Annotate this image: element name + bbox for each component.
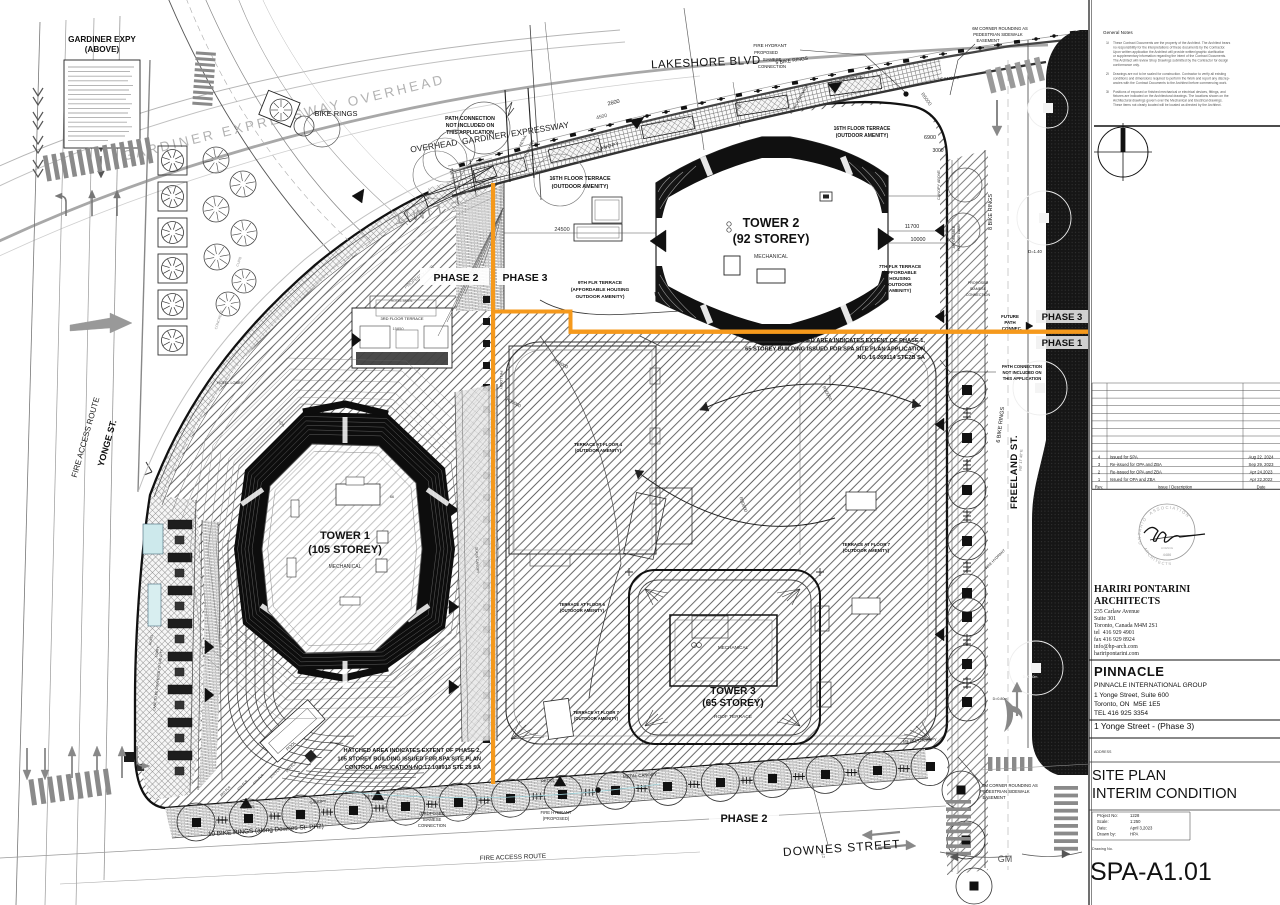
svg-text:HARIRI PONTARINI: HARIRI PONTARINI	[1094, 584, 1190, 595]
svg-text:Drawings are not to be scaled: Drawings are not to be scaled for constr…	[1113, 72, 1226, 76]
svg-text:Rev.: Rev.	[1095, 485, 1103, 490]
svg-text:FIRE HYDRANT: FIRE HYDRANT	[753, 43, 787, 48]
svg-text:no responsibility for the inte: no responsibility for the interpretation…	[1113, 45, 1226, 49]
svg-text:Issued for SPA: Issued for SPA	[1110, 454, 1138, 459]
svg-text:(AFFORDABLE: (AFFORDABLE	[883, 270, 916, 275]
svg-text:Project No:: Project No:	[1097, 813, 1118, 818]
svg-text:66: 66	[390, 495, 394, 499]
svg-text:TERRACE AT FLOOR 7: TERRACE AT FLOOR 7	[573, 710, 620, 715]
svg-text:TOWER 3: TOWER 3	[710, 686, 756, 697]
svg-text:PINNACLE INTERNATIONAL GROUP: PINNACLE INTERNATIONAL GROUP	[1094, 682, 1207, 689]
svg-text:D=0.80m: D=0.80m	[1023, 675, 1038, 679]
svg-text:PEDESTRIAN SIDEWALK: PEDESTRIAN SIDEWALK	[980, 789, 1030, 794]
svg-text:AMENITY): AMENITY)	[889, 288, 912, 293]
svg-text:PHASE 2: PHASE 2	[434, 272, 479, 284]
svg-text:PEDESTRIAN SIDEWALK: PEDESTRIAN SIDEWALK	[973, 32, 1023, 37]
svg-text:OUTDOOR: OUTDOOR	[888, 282, 912, 287]
svg-text:or supplementary information r: or supplementary information regarding t…	[1113, 54, 1226, 58]
svg-text:info@hp-arch.com: info@hp-arch.com	[1094, 643, 1138, 650]
svg-text:PHASE 3: PHASE 3	[1042, 312, 1083, 323]
svg-text:RETAIL: RETAIL	[241, 803, 256, 809]
svg-text:THIS APPLICATION: THIS APPLICATION	[446, 130, 494, 136]
svg-text:TERRACE AT FLOOR 4: TERRACE AT FLOOR 4	[574, 442, 623, 447]
svg-text:TOWER 2: TOWER 2	[743, 216, 800, 230]
svg-text:FUTURE: FUTURE	[1001, 314, 1019, 319]
svg-text:D=1.40: D=1.40	[1028, 249, 1042, 254]
svg-text:AFFORDABLE: AFFORDABLE	[952, 225, 956, 248]
svg-text:NO. 16 269114 STE2B SA: NO. 16 269114 STE2B SA	[857, 355, 925, 361]
svg-text:PROPOSED: PROPOSED	[754, 50, 778, 55]
svg-text:MECHANICAL: MECHANICAL	[718, 645, 749, 650]
svg-text:NOT INCLUDED ON: NOT INCLUDED ON	[1002, 370, 1041, 375]
svg-text:GARDINER EXPY: GARDINER EXPY	[68, 35, 136, 44]
svg-text:235 Carlaw Avenue: 235 Carlaw Avenue	[1094, 609, 1140, 615]
svg-text:Drawing No.: Drawing No.	[1092, 847, 1113, 851]
svg-text:11700: 11700	[905, 224, 920, 230]
svg-text:15850: 15850	[392, 326, 404, 331]
svg-text:Date: Date	[1257, 485, 1267, 490]
svg-text:Issue / Description: Issue / Description	[1158, 485, 1193, 490]
svg-text:FREELAND ST.: FREELAND ST.	[1009, 435, 1020, 509]
svg-text:4486: 4486	[1163, 553, 1171, 557]
svg-text:Sep 29, 2023: Sep 29, 2023	[1249, 462, 1275, 467]
svg-text:1228: 1228	[1130, 813, 1140, 818]
svg-text:HATCHED AREA INDICATES EXTENT: HATCHED AREA INDICATES EXTENT OF PHASE 2…	[344, 748, 482, 754]
svg-text:CANOPY ABOVE: CANOPY ABOVE	[937, 170, 941, 200]
svg-text:HOTEL LOBBY: HOTEL LOBBY	[217, 381, 244, 385]
svg-text:Suite 301: Suite 301	[1094, 616, 1116, 622]
svg-text:SIAMESE: SIAMESE	[763, 57, 782, 62]
svg-text:TERRACE AT FLOOR 7: TERRACE AT FLOOR 7	[842, 542, 891, 547]
svg-text:1 Yonge Street - (Phase 3): 1 Yonge Street - (Phase 3)	[1094, 721, 1194, 731]
svg-text:3RD FLOOR TERRACE: 3RD FLOOR TERRACE	[380, 316, 423, 321]
svg-text:BIKE RINGS: BIKE RINGS	[315, 109, 358, 118]
svg-text:1:250: 1:250	[1130, 819, 1141, 824]
svg-text:conformance only.: conformance only.	[1113, 63, 1140, 67]
svg-text:(OUTDOOR AMENITY): (OUTDOOR AMENITY)	[843, 548, 890, 553]
svg-text:TOWER 1: TOWER 1	[320, 530, 370, 542]
svg-text:Upon written application the A: Upon written application the Architect w…	[1113, 50, 1224, 54]
svg-text:(PROPOSED): (PROPOSED)	[543, 816, 570, 821]
svg-text:hariripontarini.com: hariripontarini.com	[1094, 651, 1139, 657]
svg-text:PHASE 1: PHASE 1	[1042, 338, 1083, 349]
svg-text:Architectural drawings govern: Architectural drawings govern over the M…	[1113, 99, 1223, 103]
svg-text:PH1 LOBBY: PH1 LOBBY	[499, 371, 503, 391]
svg-text:(105 STOREY): (105 STOREY)	[308, 544, 382, 556]
svg-text:Apr 24,2023: Apr 24,2023	[1250, 469, 1273, 474]
svg-text:6900: 6900	[924, 135, 936, 141]
svg-text:Drawn by:: Drawn by:	[1097, 832, 1116, 837]
svg-text:PHASE 3: PHASE 3	[503, 272, 548, 284]
svg-text:MECHANICAL: MECHANICAL	[329, 564, 362, 570]
svg-text:SITE PLAN: SITE PLAN	[1092, 768, 1166, 784]
svg-text:(92 STOREY): (92 STOREY)	[733, 232, 810, 246]
svg-text:1/: 1/	[1106, 41, 1109, 45]
svg-text:CONNECTION: CONNECTION	[418, 823, 446, 828]
svg-text:PROPOSED: PROPOSED	[968, 281, 989, 285]
svg-text:tel 416 929 4901: tel 416 929 4901	[1094, 630, 1135, 636]
svg-text:(OUTDOOR AMENITY): (OUTDOOR AMENITY)	[575, 448, 622, 453]
svg-text:CONNECTION: CONNECTION	[966, 293, 991, 297]
svg-text:PATH: PATH	[1004, 320, 1015, 325]
svg-text:LICENCE: LICENCE	[1161, 546, 1173, 550]
svg-text:HOTEL AMEN.: HOTEL AMEN.	[391, 299, 414, 303]
svg-text:Toronto, ON M5E 1E5: Toronto, ON M5E 1E5	[1094, 701, 1161, 708]
svg-text:The Architect will review Shop: The Architect will review Shop Drawings …	[1113, 59, 1228, 63]
svg-text:NOT INCLUDED ON: NOT INCLUDED ON	[446, 123, 495, 129]
svg-text:24500: 24500	[554, 227, 569, 233]
svg-text:(OUTDOOR AMENITY): (OUTDOOR AMENITY)	[574, 716, 619, 721]
svg-text:THIS APPLICATION: THIS APPLICATION	[1003, 376, 1042, 381]
svg-text:INTERIM CONDITION: INTERIM CONDITION	[1092, 786, 1237, 802]
svg-text:(65 STOREY): (65 STOREY)	[702, 698, 764, 709]
svg-text:(OUTDOOR AMENITY): (OUTDOOR AMENITY)	[552, 184, 609, 190]
svg-text:65 STOREY BUILDING ISSUED FOR: 65 STOREY BUILDING ISSUED FOR SPA SITE P…	[745, 347, 925, 353]
svg-text:These Contract Documents are t: These Contract Documents are the propert…	[1113, 41, 1231, 45]
svg-text:MECHANICAL: MECHANICAL	[754, 254, 788, 260]
svg-text:Scale:: Scale:	[1097, 819, 1109, 824]
svg-text:fixtures are indicated on the: fixtures are indicated on the Architectu…	[1113, 94, 1229, 98]
svg-text:Issued for OPA and ZBA: Issued for OPA and ZBA	[1110, 477, 1156, 482]
svg-text:Date:: Date:	[1097, 825, 1107, 830]
svg-text:CONTROL APPLICATION NO.17 1089: CONTROL APPLICATION NO.17 108913 STE 28 …	[345, 765, 481, 771]
svg-text:fax 416 929 8924: fax 416 929 8924	[1094, 636, 1135, 643]
svg-text:conditions and dimensions requ: conditions and dimensions required to pe…	[1113, 76, 1230, 80]
svg-text:PINNACLE: PINNACLE	[1094, 664, 1164, 679]
svg-text:(OUTDOOR AMENITY): (OUTDOOR AMENITY)	[836, 133, 889, 139]
svg-text:Aug 22, 2024: Aug 22, 2024	[1249, 454, 1275, 459]
svg-text:EASEMENT: EASEMENT	[982, 795, 1005, 800]
svg-text:SPA-A1.01: SPA-A1.01	[1090, 858, 1212, 886]
svg-text:2/: 2/	[1106, 72, 1109, 76]
svg-text:Re-issued for OPA and ZBA: Re-issued for OPA and ZBA	[1110, 462, 1162, 467]
svg-text:(OUTDOOR AMENITY): (OUTDOOR AMENITY)	[560, 608, 605, 613]
svg-text:Positions of exposed or finish: Positions of exposed or finished mechani…	[1113, 90, 1226, 94]
svg-text:SIAMESE: SIAMESE	[423, 817, 442, 822]
svg-text:Re-issued for OPA and ZBA: Re-issued for OPA and ZBA	[1110, 469, 1162, 474]
svg-text:ROOF TERRACE: ROOF TERRACE	[714, 714, 752, 720]
svg-text:PHASE 2: PHASE 2	[720, 813, 767, 825]
svg-text:16TH FLOOR TERRACE: 16TH FLOOR TERRACE	[549, 176, 611, 182]
svg-text:PATH CONNECTION: PATH CONNECTION	[445, 116, 495, 122]
svg-text:HPA: HPA	[1130, 832, 1139, 837]
svg-text:3000: 3000	[932, 148, 943, 154]
svg-text:PATH CONNECTION: PATH CONNECTION	[1002, 364, 1042, 369]
svg-text:General Notes: General Notes	[1103, 30, 1133, 35]
svg-text:HOUSING: HOUSING	[889, 276, 911, 281]
svg-text:1 Yonge Street, Suite 600: 1 Yonge Street, Suite 600	[1094, 692, 1169, 699]
svg-text:TERRACE AT FLOOR 6: TERRACE AT FLOOR 6	[559, 602, 606, 607]
svg-text:CONNECTION: CONNECTION	[758, 64, 786, 69]
svg-text:These items not clearly locate: These items not clearly located will be …	[1113, 103, 1222, 107]
svg-text:ARCHITECTS: ARCHITECTS	[1094, 596, 1161, 607]
svg-text:(AFFORDABLE HOUSING: (AFFORDABLE HOUSING	[571, 287, 630, 293]
svg-text:6M CORNER ROUNDING AS: 6M CORNER ROUNDING AS	[982, 783, 1038, 788]
svg-text:8 BIKE RINGS: 8 BIKE RINGS	[988, 194, 994, 230]
svg-text:10000: 10000	[911, 237, 926, 243]
svg-text:FIRE HYDRANT: FIRE HYDRANT	[541, 810, 572, 815]
svg-text:D=0.80m: D=0.80m	[993, 697, 1008, 701]
svg-text:7TH FLR TERRACE: 7TH FLR TERRACE	[879, 264, 921, 269]
svg-text:Toronto, Canada M4M 2S1: Toronto, Canada M4M 2S1	[1094, 623, 1158, 629]
svg-text:RETAIL: RETAIL	[541, 777, 556, 783]
svg-text:ADDRESS: ADDRESS	[1094, 750, 1112, 754]
svg-text:HATCHED AREA INDICATES EXTENT: HATCHED AREA INDICATES EXTENT OF PHASE 1…	[788, 338, 926, 344]
svg-text:(ABOVE): (ABOVE)	[85, 45, 120, 54]
svg-text:OUTDOOR AMENITY): OUTDOOR AMENITY)	[576, 294, 625, 300]
svg-text:6M CORNER ROUNDING AS: 6M CORNER ROUNDING AS	[972, 26, 1028, 31]
svg-text:Apr 22,2022: Apr 22,2022	[1250, 477, 1273, 482]
svg-text:3/: 3/	[1106, 90, 1109, 94]
svg-text:105 STOREY BUILDING ISSUED FOR: 105 STOREY BUILDING ISSUED FOR SPA SITE …	[337, 757, 481, 763]
svg-text:ancies with the Contract Docum: ancies with the Contract Documents to th…	[1113, 81, 1227, 85]
svg-text:TEL 416 925 3354: TEL 416 925 3354	[1094, 710, 1148, 717]
svg-text:16TH FLOOR TERRACE: 16TH FLOOR TERRACE	[834, 126, 891, 132]
svg-text:EASEMENT: EASEMENT	[976, 38, 999, 43]
svg-text:SIAMESE: SIAMESE	[970, 287, 987, 291]
svg-text:GM: GM	[998, 854, 1013, 864]
svg-text:(PROPOSED: (PROPOSED	[419, 811, 444, 816]
svg-text:9TH FLR TERRACE: 9TH FLR TERRACE	[578, 280, 623, 286]
svg-text:April 3,2023: April 3,2023	[1130, 825, 1153, 830]
svg-text:HOUSING LOBBY: HOUSING LOBBY	[957, 222, 961, 251]
